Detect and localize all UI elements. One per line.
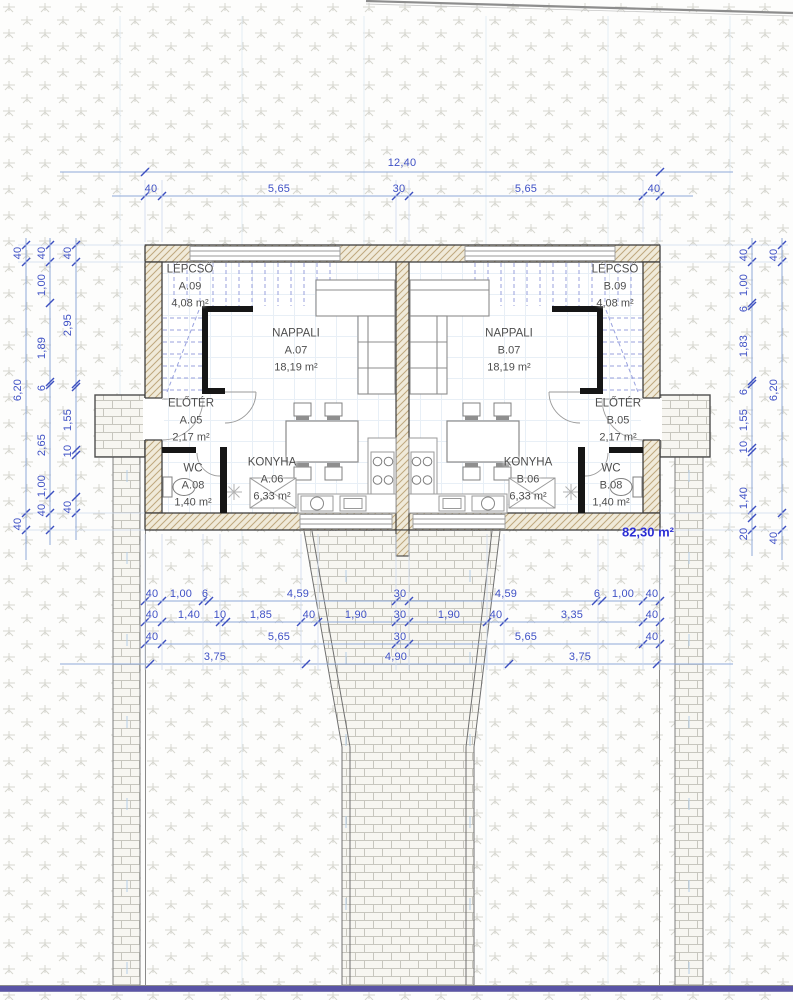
right-entry-opening <box>641 398 662 440</box>
left-entry-opening <box>143 398 164 440</box>
bottom-site-band <box>0 986 793 992</box>
party-wall <box>396 262 409 530</box>
floor-plan-canvas <box>0 0 793 1000</box>
right-exterior-wall <box>643 262 660 513</box>
left-exterior-wall <box>145 262 162 513</box>
floor-plan-page: 82,30 m² 12,40405,65305,6540401,0064,593… <box>0 0 793 1000</box>
right-entry-porch <box>660 395 710 457</box>
left-entry-porch <box>95 395 145 457</box>
party-wall-stub <box>396 530 409 556</box>
